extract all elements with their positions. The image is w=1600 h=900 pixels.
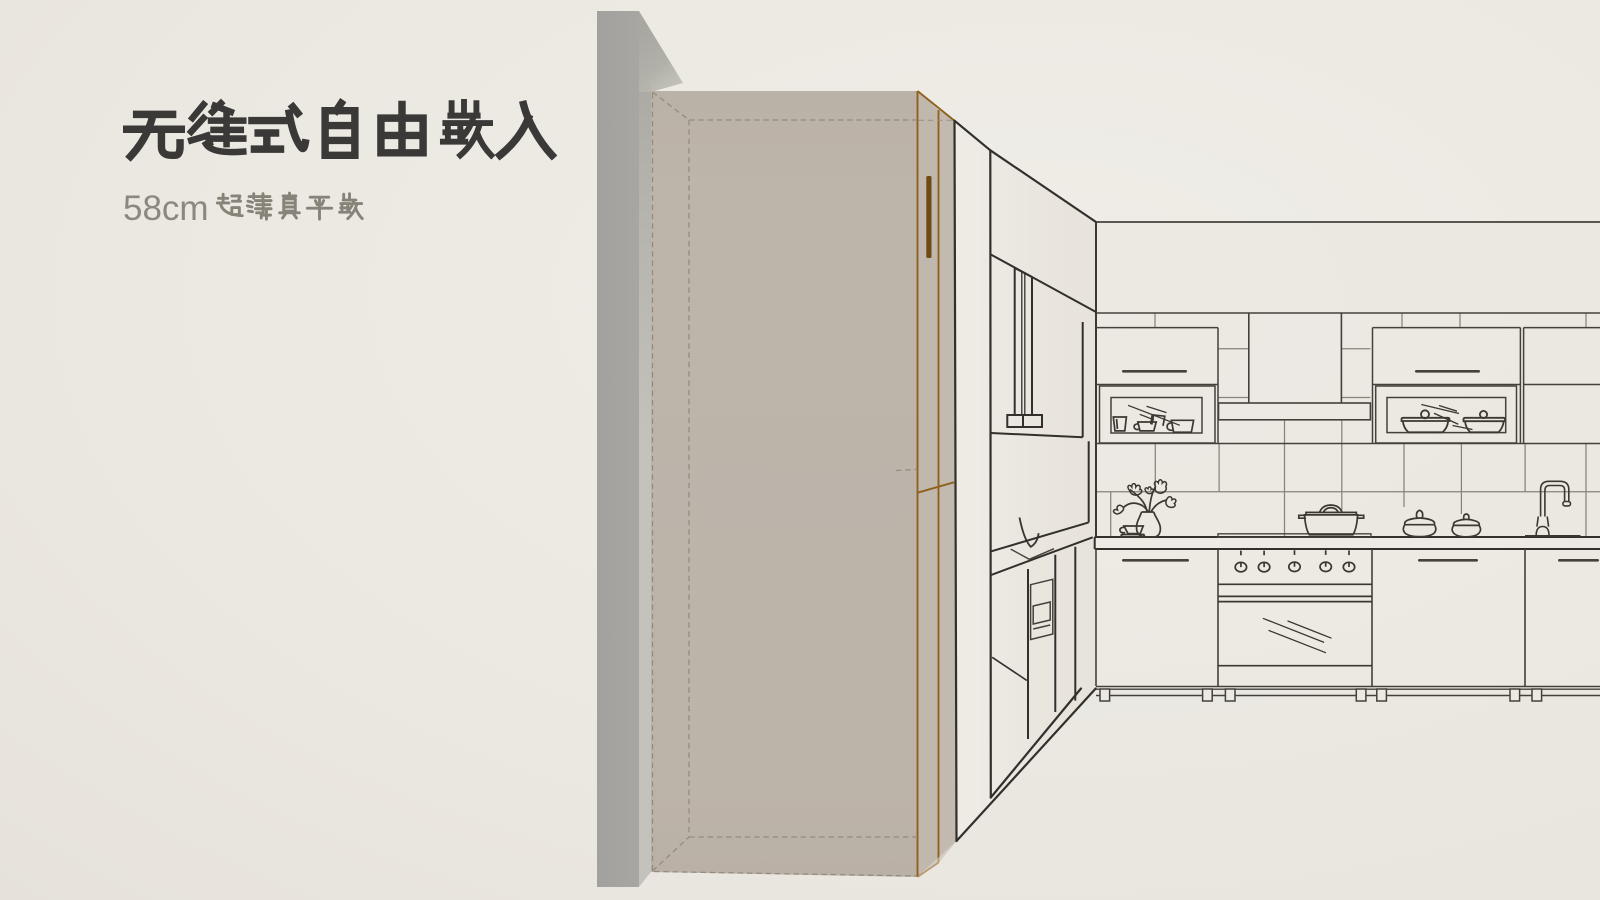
svg-text:58cm: 58cm	[123, 189, 209, 228]
